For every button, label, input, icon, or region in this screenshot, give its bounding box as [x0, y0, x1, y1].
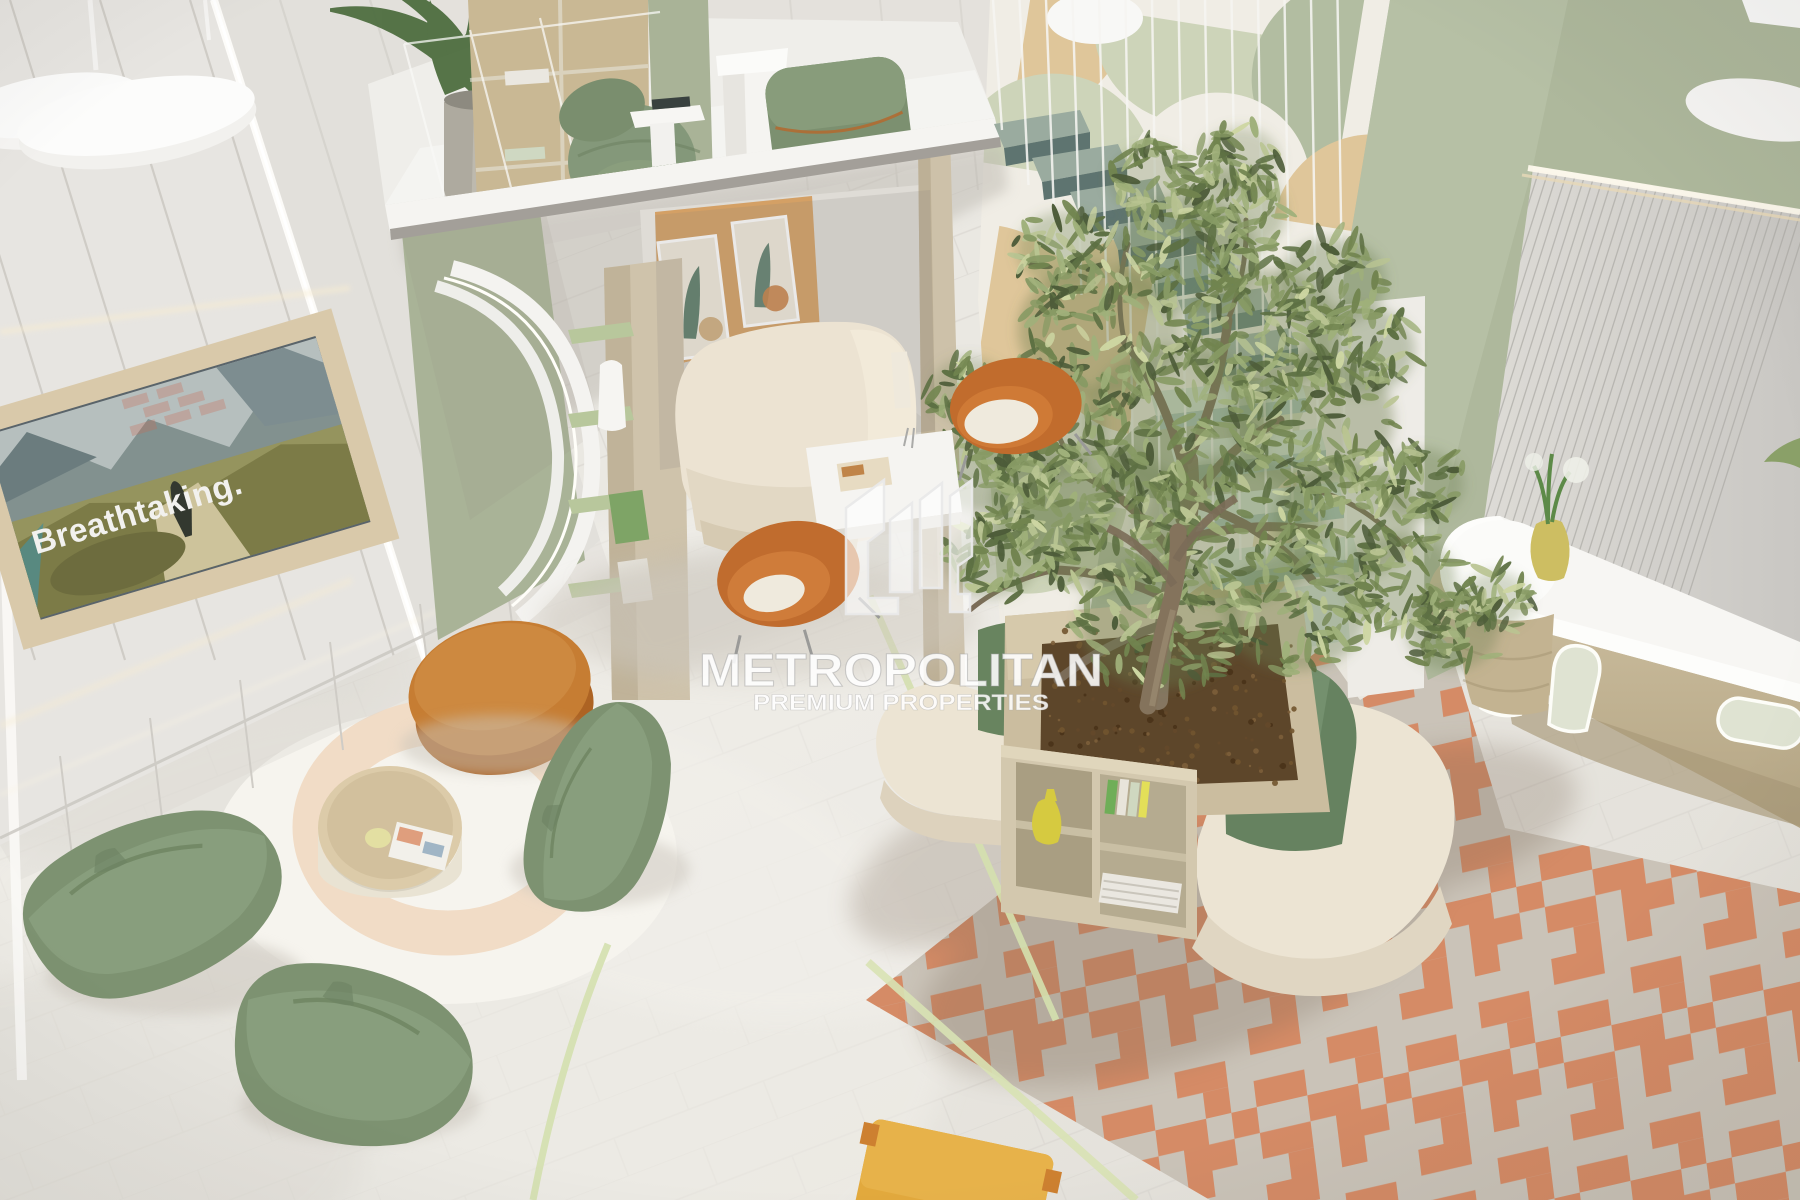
svg-text:METROPOLITAN: METROPOLITAN: [699, 644, 1103, 696]
svg-text:PREMIUM PROPERTIES: PREMIUM PROPERTIES: [753, 690, 1049, 715]
